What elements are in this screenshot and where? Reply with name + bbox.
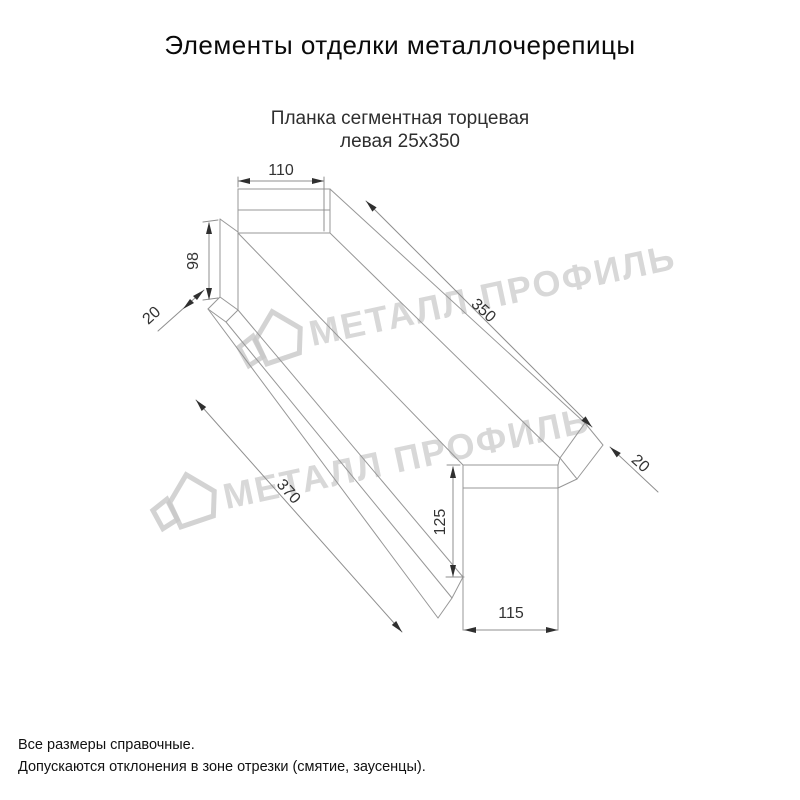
near-cross-section [208,189,330,322]
arrowhead [206,288,212,300]
top-flange-outline [238,189,330,233]
dimension-label: 98 [185,252,202,270]
metall-profil-logo-icon [233,307,306,369]
watermark-metall-profil: МЕТАЛЛ ПРОФИЛЬ [147,390,593,532]
footer-notes: Все размеры справочные. Допускаются откл… [18,734,426,778]
drawing-canvas: МЕТАЛЛ ПРОФИЛЬ МЕТАЛЛ ПРОФИЛЬ [0,0,800,800]
page: Элементы отделки металлочерепицы Планка … [0,0,800,800]
near-hem-fold [208,297,238,322]
profile-long-edges [208,189,585,618]
end-fold-connector [558,479,577,488]
near-face-bottom-edge [220,297,238,310]
arrowhead [464,627,476,633]
dimension-label: 20 [628,452,653,477]
arrowhead [450,565,456,577]
dimension-label: 125 [432,509,449,536]
dimension-label: 20 [140,303,165,328]
watermark-text: МЕТАЛЛ ПРОФИЛЬ [305,236,679,354]
arrowhead [312,178,324,184]
hem-tip-closure [438,577,463,618]
dimension-125: 125 [432,465,464,577]
near-face-top-edge [220,219,238,232]
footer-note-line2: Допускаются отклонения в зоне отрезки (с… [18,756,426,778]
metall-profil-logo-icon [147,470,220,532]
end-fold-connector [558,458,560,465]
arrowhead [546,627,558,633]
watermark-metall-profil: МЕТАЛЛ ПРОФИЛЬ [233,227,679,369]
watermark-text: МЕТАЛЛ ПРОФИЛЬ [219,399,593,517]
dimension-115: 115 [464,605,558,633]
footer-note-line1: Все размеры справочные. [18,734,426,756]
dimension-110: 110 [238,162,324,231]
dimension-label: 115 [498,605,524,622]
dimension-98: 98 [185,220,218,300]
arrowhead [238,178,250,184]
arrowhead [206,222,212,234]
extension-line [238,177,324,231]
dimension-20-near: 20 [140,290,204,331]
dimension-label: 110 [268,162,294,179]
dimension-20-far: 20 [610,447,658,492]
